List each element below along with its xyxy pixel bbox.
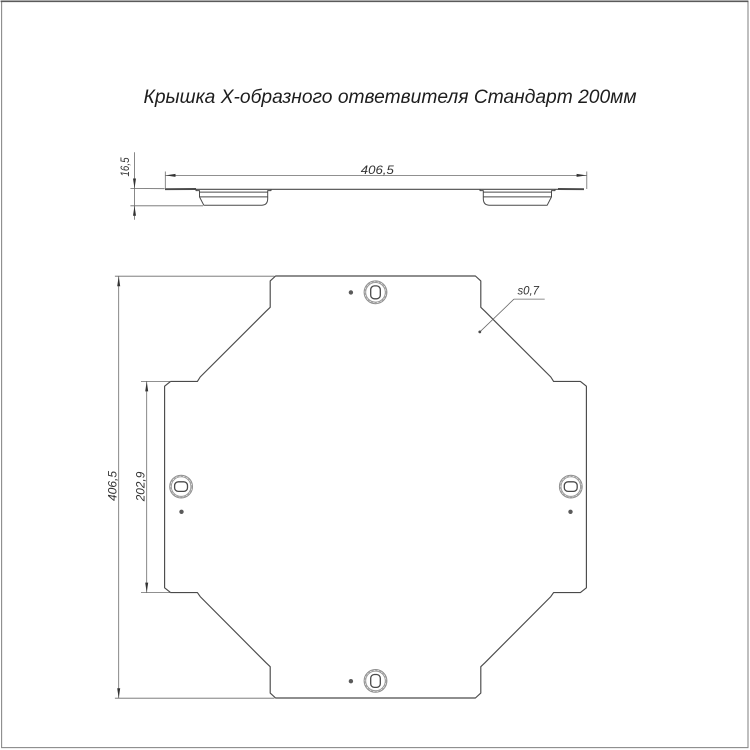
svg-text:16,5: 16,5 — [118, 157, 132, 176]
svg-text:406,5: 406,5 — [105, 471, 119, 501]
svg-text:406,5: 406,5 — [361, 163, 394, 177]
svg-text:Крышка Х-образного ответвителя: Крышка Х-образного ответвителя Стандарт … — [144, 87, 637, 108]
svg-text:202,9: 202,9 — [134, 471, 148, 502]
svg-text:s0,7: s0,7 — [518, 283, 541, 297]
